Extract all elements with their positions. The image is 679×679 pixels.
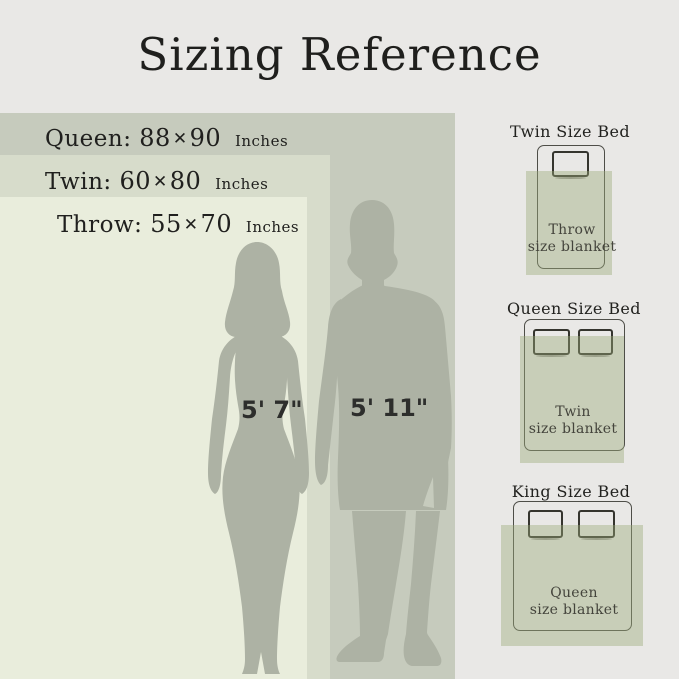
twin-blanket-overlay (520, 336, 624, 463)
twin-bed-title: Twin Size Bed (505, 122, 635, 141)
sizing-reference-infographic: Sizing Reference Queen: 88✕90 Inches Twi… (0, 0, 679, 679)
twin-blanket-label: Twin size blanket (523, 404, 623, 438)
twin-blanket-label-line2: size blanket (523, 421, 623, 438)
throw-blanket-label-line1: Throw (522, 222, 622, 239)
woman-height-label: 5' 7" (241, 396, 303, 424)
throw-blanket-label: Throw size blanket (522, 222, 622, 256)
queen-blanket-label-line1: Queen (524, 585, 624, 602)
man-silhouette (315, 200, 452, 666)
queen-bed-title: Queen Size Bed (507, 299, 637, 318)
man-height-label: 5' 11" (350, 394, 428, 422)
twin-blanket-label-line1: Twin (523, 404, 623, 421)
king-bed-title: King Size Bed (506, 482, 636, 501)
queen-blanket-label-line2: size blanket (524, 602, 624, 619)
throw-blanket-label-line2: size blanket (522, 239, 622, 256)
queen-blanket-label: Queen size blanket (524, 585, 624, 619)
woman-silhouette (208, 242, 309, 674)
